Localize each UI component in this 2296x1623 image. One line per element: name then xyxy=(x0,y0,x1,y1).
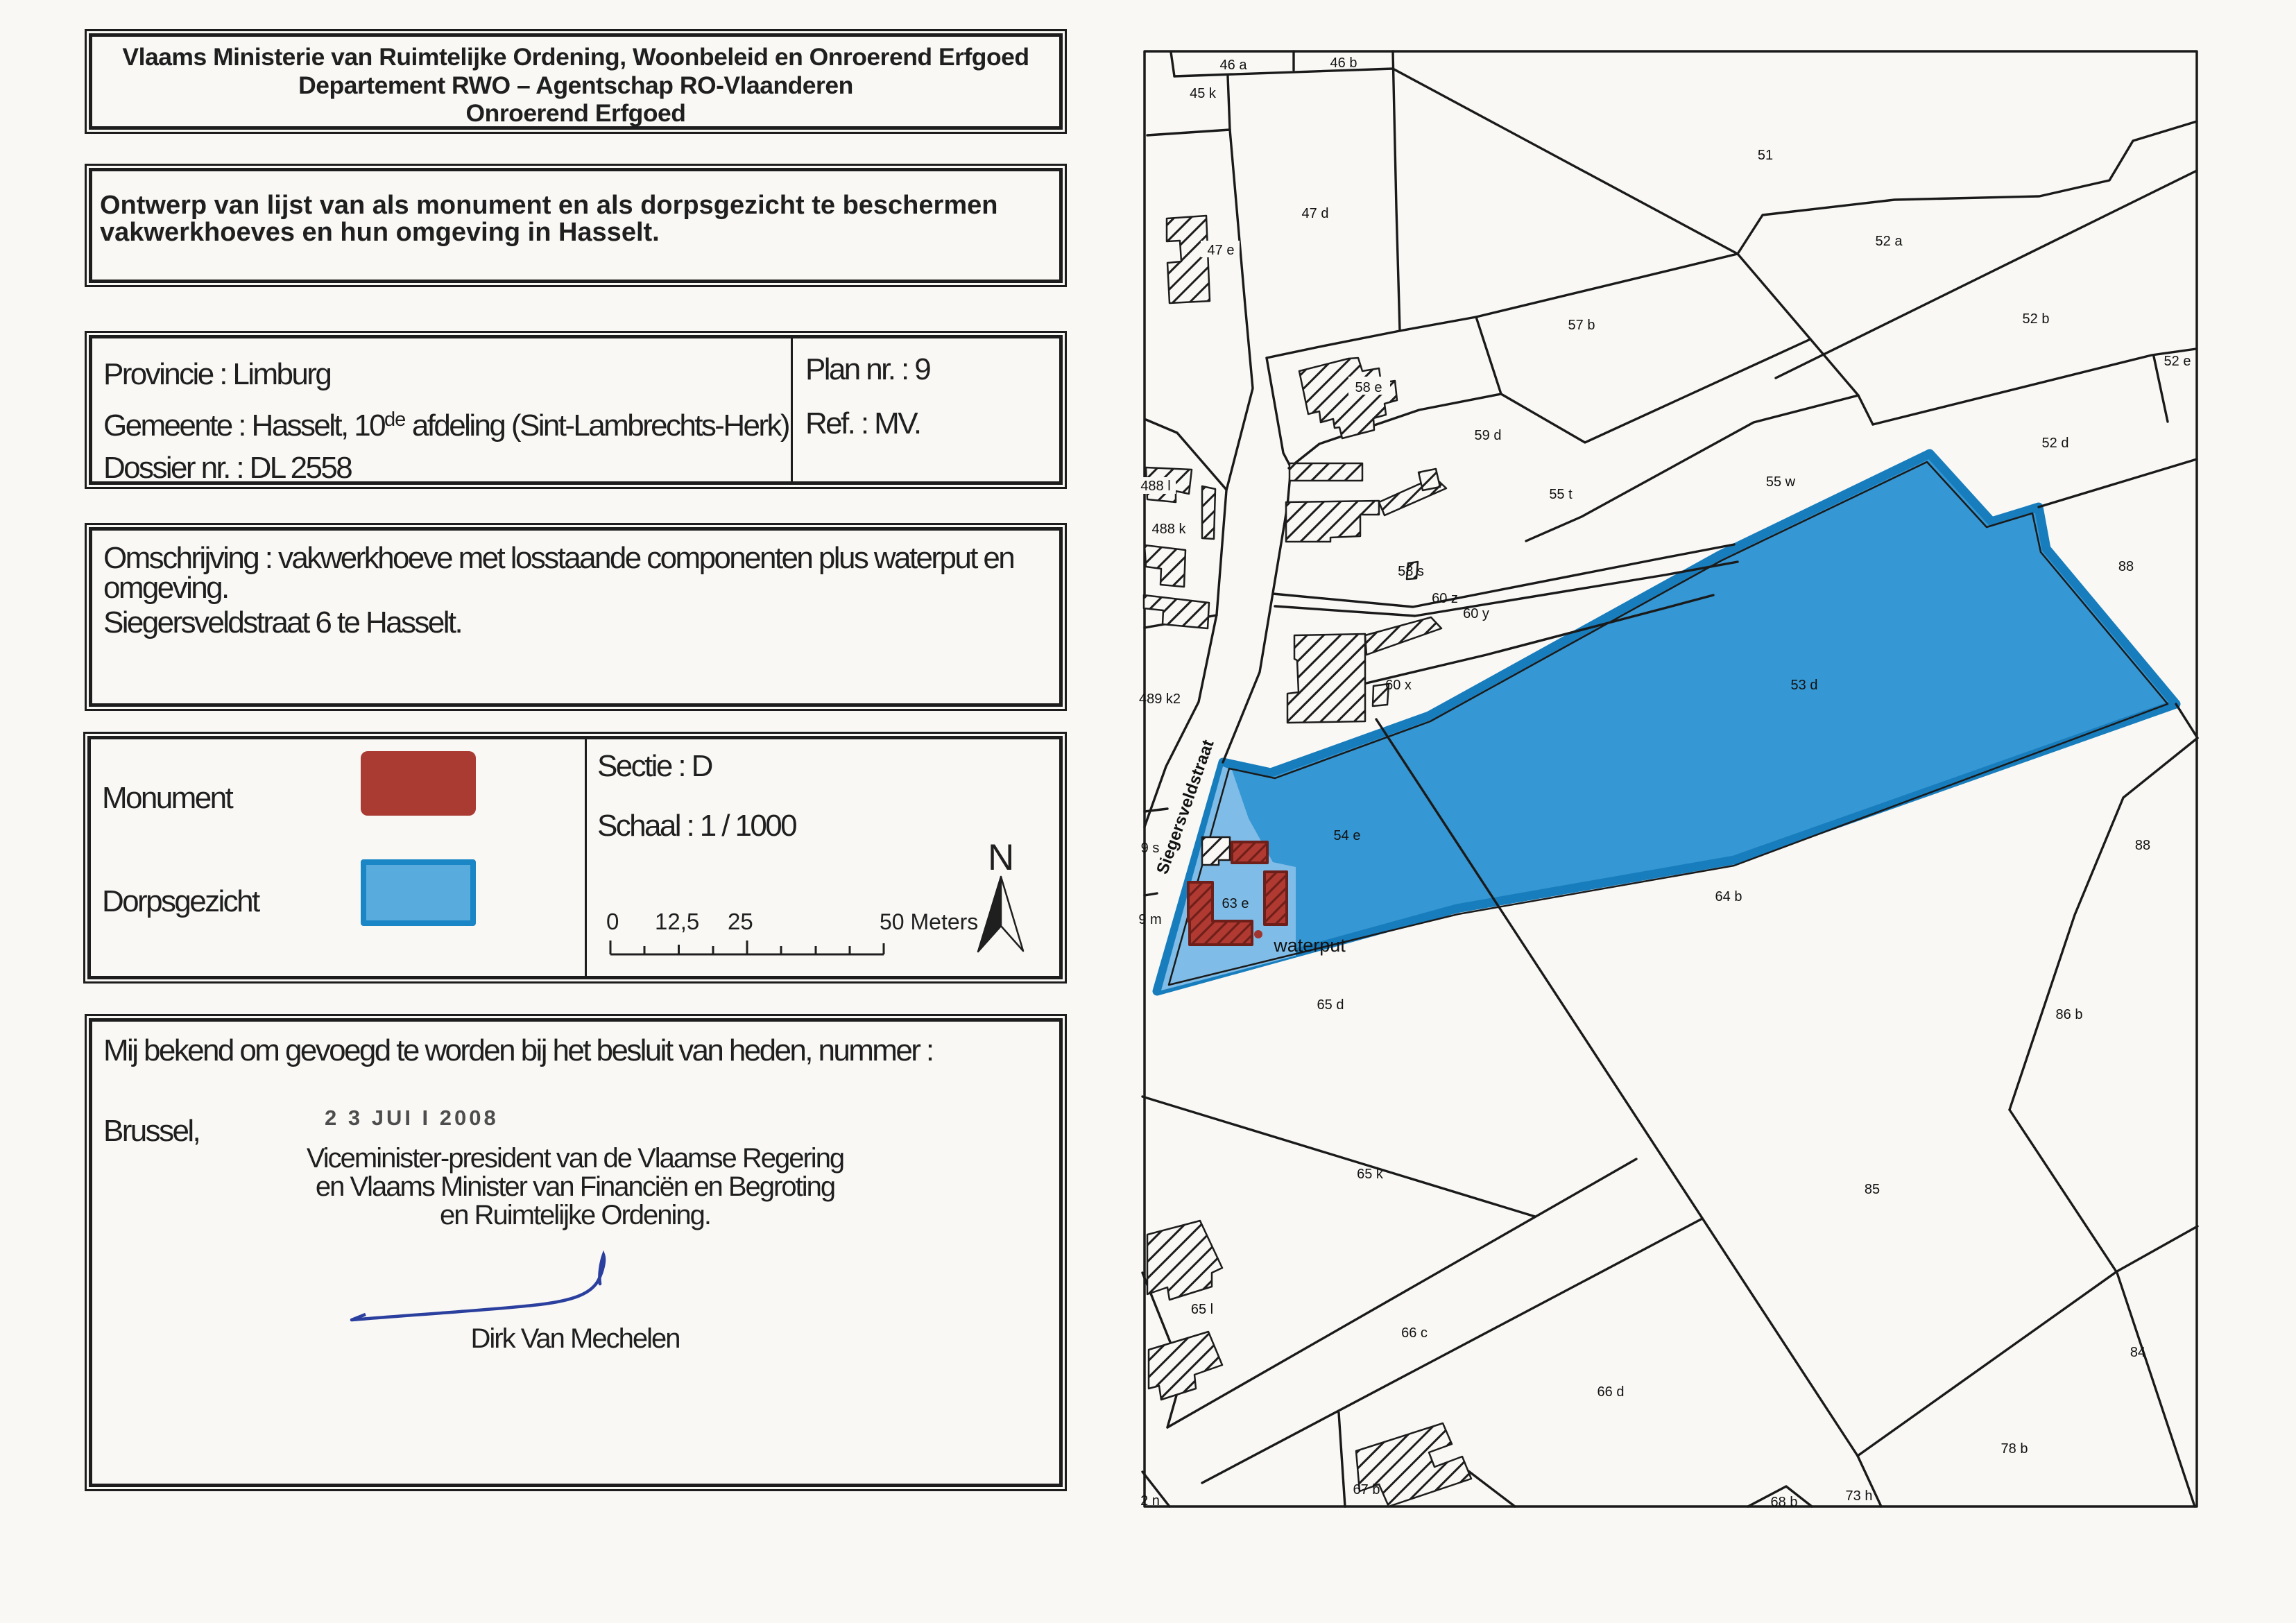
svg-text:65 d: 65 d xyxy=(1317,997,1344,1013)
svg-text:46 a: 46 a xyxy=(1220,58,1248,73)
svg-text:68 b: 68 b xyxy=(1771,1495,1798,1510)
svg-text:47 e: 47 e xyxy=(1208,243,1235,258)
svg-text:52 e: 52 e xyxy=(2164,354,2191,369)
svg-text:85: 85 xyxy=(1865,1182,1880,1197)
svg-text:54 e: 54 e xyxy=(1334,828,1361,843)
svg-text:59 d: 59 d xyxy=(1475,428,1502,443)
svg-text:489 k2: 489 k2 xyxy=(1139,692,1181,707)
svg-text:47 d: 47 d xyxy=(1302,206,1329,221)
svg-text:58 e: 58 e xyxy=(1355,380,1382,395)
svg-text:66 c: 66 c xyxy=(1401,1325,1428,1341)
svg-text:52 b: 52 b xyxy=(2023,311,2050,327)
svg-text:waterput: waterput xyxy=(1273,935,1346,956)
svg-text:9 m: 9 m xyxy=(1138,912,1161,927)
svg-text:53 d: 53 d xyxy=(1791,678,1818,693)
svg-text:88: 88 xyxy=(2135,838,2150,853)
svg-text:52 d: 52 d xyxy=(2042,436,2069,451)
svg-text:66 d: 66 d xyxy=(1597,1384,1625,1400)
svg-text:58 s: 58 s xyxy=(1398,564,1424,579)
svg-text:60 x: 60 x xyxy=(1385,678,1412,693)
svg-text:86 b: 86 b xyxy=(2056,1007,2083,1022)
svg-text:51: 51 xyxy=(1758,148,1773,163)
svg-text:88: 88 xyxy=(2118,559,2134,574)
svg-text:78 b: 78 b xyxy=(2001,1441,2028,1457)
svg-text:488 l: 488 l xyxy=(1140,479,1170,494)
svg-text:64 b: 64 b xyxy=(1715,889,1742,904)
svg-text:84: 84 xyxy=(2130,1345,2145,1360)
svg-text:55 t: 55 t xyxy=(1549,487,1573,502)
svg-text:52 a: 52 a xyxy=(1876,234,1903,249)
svg-text:63 e: 63 e xyxy=(1222,896,1249,911)
svg-text:9 s: 9 s xyxy=(1141,841,1160,856)
svg-text:57 b: 57 b xyxy=(1568,318,1595,333)
svg-text:60 z: 60 z xyxy=(1432,591,1458,606)
svg-text:65 l: 65 l xyxy=(1191,1302,1213,1317)
svg-text:55 w: 55 w xyxy=(1766,474,1796,490)
svg-text:488 k: 488 k xyxy=(1152,522,1187,537)
svg-text:67 b: 67 b xyxy=(1353,1482,1380,1497)
svg-text:46 b: 46 b xyxy=(1330,55,1357,71)
svg-text:65 k: 65 k xyxy=(1357,1167,1384,1182)
svg-text:2 n: 2 n xyxy=(1140,1493,1160,1509)
svg-text:45 k: 45 k xyxy=(1190,86,1217,101)
svg-text:73 h: 73 h xyxy=(1846,1488,1873,1504)
svg-text:60 y: 60 y xyxy=(1463,606,1489,621)
